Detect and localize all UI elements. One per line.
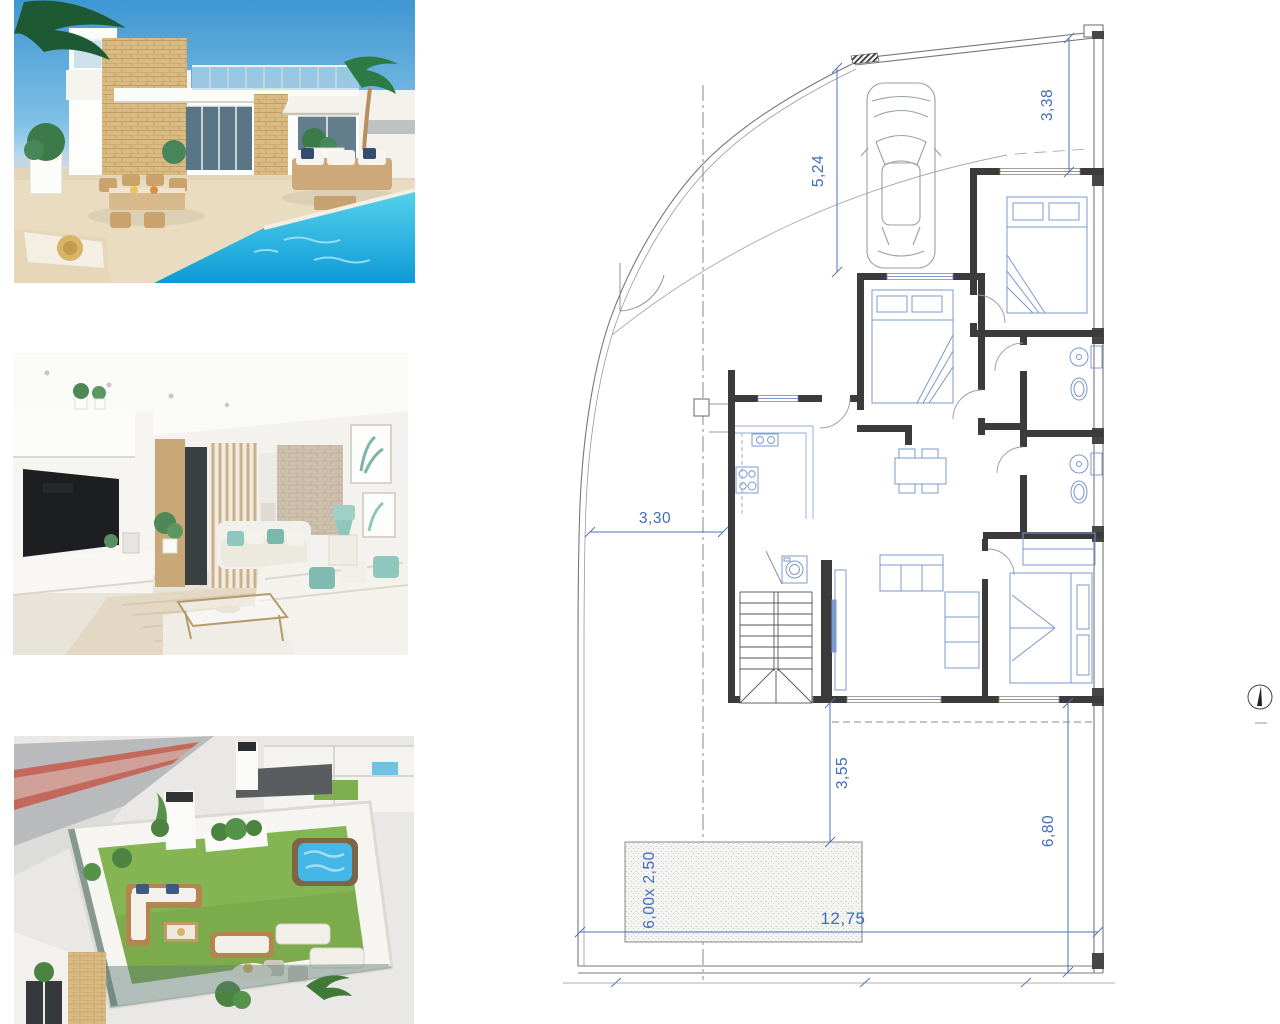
- dim-garden-depth: [1063, 698, 1073, 977]
- dim-label-12-75: 12,75: [820, 909, 865, 928]
- sideboard-icon: [945, 592, 979, 668]
- bed-icon-bedroom1: [1007, 197, 1087, 313]
- sink-icon-bath1: [1071, 378, 1087, 400]
- floor-plan-drawing: 6,00x 2,50: [555, 5, 1280, 1015]
- dim-driveway-length: [832, 63, 842, 277]
- kitchen-sink-icon: [752, 434, 778, 446]
- dim-front-setback: [1064, 33, 1074, 177]
- tv-media-wall: [13, 383, 153, 595]
- washing-machine-icon: [782, 556, 807, 583]
- tv-cabinet-icon: [832, 570, 846, 690]
- car-icon: [861, 83, 941, 268]
- bed-icon-bedroom3: [1010, 573, 1092, 683]
- dim-label-3-38: 3,38: [1039, 89, 1056, 121]
- dim-left-setback: [585, 527, 728, 537]
- entrance-porch: [694, 399, 728, 432]
- dim-label-3-30: 3,30: [639, 510, 671, 527]
- stairs-icon: [740, 592, 812, 703]
- dining-table-icon: [895, 449, 946, 493]
- sink-icon-bath2: [1071, 481, 1087, 503]
- pool-size-label: 6,00x 2,50: [641, 851, 658, 928]
- dim-label-6-80: 6,80: [1040, 815, 1057, 847]
- hob-icon: [736, 467, 758, 493]
- toilet-icon-bath2: [1070, 453, 1102, 475]
- pedestrian-gate: [620, 263, 664, 311]
- driveway-path-arc: [612, 149, 1088, 335]
- photo-villa-exterior[interactable]: [14, 0, 415, 283]
- living-room-illustration: [13, 353, 408, 655]
- bed-icon-bedroom2: [872, 290, 953, 403]
- north-arrow-icon: [1248, 685, 1272, 723]
- photo-gallery: [0, 0, 440, 1024]
- dim-label-5-24: 5,24: [810, 155, 827, 187]
- toilet-icon-bath1: [1070, 346, 1102, 368]
- hot-tub: [292, 838, 358, 886]
- property-listing-page: 6,00x 2,50: [0, 0, 1280, 1024]
- floor-plan: 6,00x 2,50: [555, 5, 1280, 1015]
- dimension-labels: 5,24 3,38 3,30 3,55 6,80 12,75: [639, 89, 1057, 928]
- rooftop-terrace-illustration: [14, 736, 414, 1024]
- sofa-icon: [880, 555, 943, 591]
- photo-living-room[interactable]: [13, 353, 408, 655]
- photo-rooftop-terrace[interactable]: [14, 736, 414, 1024]
- back-sofa: [217, 521, 311, 569]
- villa-exterior-illustration: [14, 0, 415, 283]
- dim-label-3-55: 3,55: [834, 757, 851, 789]
